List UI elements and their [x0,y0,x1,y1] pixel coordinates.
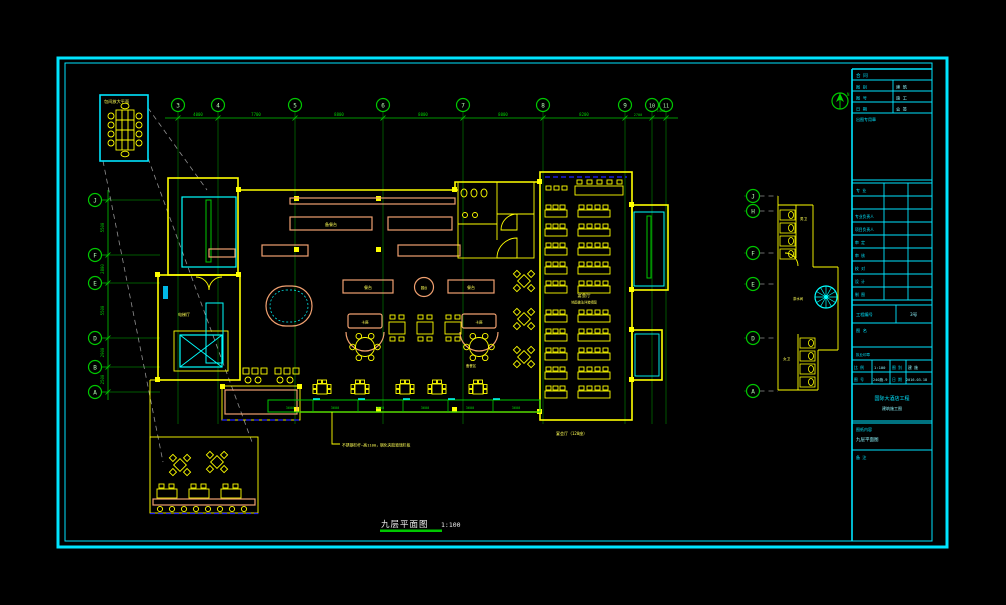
tb-projno: 3号 [910,312,918,318]
grid-label: 4 [216,103,220,110]
title-block: 合 同 图 别 建 筑 图 号 施 工 日 期 会 签 出图专用章 专 业 专业… [852,69,932,541]
svg-text:3600: 3600 [421,406,429,410]
planter-row [157,506,246,511]
svg-text:3600: 3600 [331,406,339,410]
svg-text:2700: 2700 [634,113,642,117]
svg-text:不锈钢栏杆—高1100，钢化夹胶玻璃栏板: 不锈钢栏杆—高1100，钢化夹胶玻璃栏板 [342,443,411,448]
grid-label: 7 [461,103,465,110]
tb-cell: 比 例 [854,365,864,370]
grid-label: H [751,209,755,216]
table-label: 餐台 [467,284,475,290]
svg-text:8200: 8200 [579,112,589,117]
dining-center: 餐台 餐台 圆台 卡座 卡座 备餐区 [266,263,542,374]
grid-label: 5 [293,103,297,110]
svg-text:8800: 8800 [334,112,344,117]
tb-content-label: 图纸内容 [856,426,872,432]
grid-label: 8 [541,103,545,110]
tb-person: 项目负责人 [855,227,874,232]
grid-label: 9 [623,103,627,110]
booth-label: 卡座 [475,320,483,325]
tb-person: 校 对 [855,266,865,271]
left-stair-core: 电梯厅 [163,197,236,371]
booth-label: 卡座 [361,320,369,325]
tb-seal-label: 执业印章 [856,352,870,357]
planter-bar [225,390,297,414]
sheet-frame [58,58,947,547]
svg-text:5500: 5500 [100,305,105,315]
tb-cell: 图 号 [856,96,867,102]
tb-cell: 日 期 [892,377,902,382]
tb-content: 九层平面图 [856,436,879,443]
grid-system: 3 4 5 6 7 8 9 10 11 4000 7700 8800 8000 … [89,99,779,425]
room-label: 电梯厅 [178,311,190,317]
counter-label: 备餐台 [325,221,337,227]
grid-bubbles-right: J H F E D A [747,190,760,398]
tb-person: 设 计 [855,279,865,284]
tb-note-label: 备 注 [856,454,866,460]
pantry-counters: 备餐台 [262,198,460,256]
elevator [174,331,228,371]
conference-table [108,103,142,157]
grid-label: F [751,251,755,258]
podium-chairs [546,180,622,190]
door-marker [163,286,168,299]
dimension-text-left: 5500 2800 5500 2900 2500 [100,222,105,384]
hall-seats-note: 宴会厅（120座） [556,430,587,436]
table-label: 餐台 [364,284,372,290]
detail-callout: 包间放大平面 [100,95,252,462]
grid-label: 6 [381,103,385,110]
svg-text:3600: 3600 [466,406,474,410]
grid-label: 10 [649,104,655,110]
svg-text:2800: 2800 [100,264,105,274]
grid-label: E [751,282,755,289]
grid-label: J [751,194,755,201]
detail-label: 包间放大平面 [104,98,129,105]
tb-cell: 图 别 [892,365,902,370]
svg-text:8000: 8000 [418,112,428,117]
tb-cell: 图 别 [856,84,867,91]
svg-text:3600: 3600 [376,406,384,410]
wc-block-center [458,182,534,258]
tb-projno-label: 工程编号 [856,311,873,318]
tb-project-sub: 建筑施工图 [882,405,902,411]
svg-text:2900: 2900 [100,347,105,357]
drawing-title: 九层平面图 1:100 [380,520,461,532]
north-label: N [847,92,850,97]
tb-cell: 建 筑 [896,84,908,91]
tb-person: 专业负责人 [855,214,874,219]
grid-label: E [93,281,97,288]
dimension-text-top: 4000 7700 8800 8000 8000 8200 2700 1400 [193,109,665,117]
wc-label: 男卫 [800,216,808,221]
square-tables [389,315,461,341]
window-band: 3600 3600 3600 3600 3600 3600 [268,399,540,412]
banquet-hall: 宴会厅 地面做法详装修图 宴会厅（120座） [545,177,627,436]
grid-label: D [93,336,97,343]
grid-label: A [93,390,97,397]
svg-text:2500: 2500 [100,374,105,384]
tb-cell: 日 期 [856,107,867,113]
svg-text:3600: 3600 [512,406,520,410]
tb-cell: 会 签 [896,106,908,113]
north-arrow-icon: N [832,92,850,109]
tb-cell: 施 工 [896,95,907,102]
tb-row1: 合 同 [856,72,868,79]
building-walls [150,172,838,513]
tb-date: 2016.03.18 [906,378,927,382]
table-label: 圆台 [421,285,427,290]
grid-label: A [751,389,755,396]
grid-label: B [93,365,97,372]
tb-cell: 1:100 [874,365,886,370]
svg-text:3600: 3600 [286,406,294,410]
service-label: 备餐区 [466,363,477,368]
grid-label: F [93,253,97,260]
lounge-seats [243,368,299,383]
tb-project-name: 国际大酒店工程 [874,395,909,402]
railing-annotation: 不锈钢栏杆—高1100，钢化夹胶玻璃栏板 [332,412,411,448]
tb-figname-label: 图 名 [856,327,867,334]
spiral-stair [815,286,837,308]
drawing-scale-text: 1:100 [441,521,461,529]
tb-cell: 240施-9 [873,377,887,382]
wc-label: 女卫 [783,356,791,361]
grid-label: J [93,198,97,205]
svg-text:1400: 1400 [657,109,665,113]
drawing-title-text: 九层平面图 [381,520,429,530]
tb-person: 制 图 [855,292,865,297]
tb-person: 审 核 [855,253,865,258]
svg-text:5500: 5500 [100,222,105,232]
tb-stamp-label: 出图专用章 [856,116,876,122]
right-wing: 男卫 茶水间 女卫 [780,210,837,387]
tb-cell: 图 号 [854,377,864,382]
cad-drawing-screenshot: 3 4 5 6 7 8 9 10 11 4000 7700 8800 8000 … [0,0,1006,605]
tb-sign-header: 专 业 [856,187,866,193]
hall-label: 宴会厅 [577,292,591,299]
svg-text:7700: 7700 [251,112,261,117]
svg-text:8000: 8000 [498,112,508,117]
grid-label: 3 [176,103,180,110]
terrace [150,437,258,514]
tb-cell: 建 施 [908,365,918,370]
tb-person: 审 定 [855,240,865,245]
tea-label: 茶水间 [793,296,804,301]
svg-text:4000: 4000 [193,112,203,117]
bottom-zone: 3600 3600 3600 3600 3600 3600 不锈钢栏杆—高110… [222,368,540,448]
grid-bubbles-top: 3 4 5 6 7 8 9 10 11 [172,99,673,112]
right-stair [634,212,664,376]
floor-plan-canvas[interactable]: 3 4 5 6 7 8 9 10 11 4000 7700 8800 8000 … [0,0,1006,605]
grid-label: D [751,336,755,343]
hall-note: 地面做法详装修图 [571,300,597,305]
